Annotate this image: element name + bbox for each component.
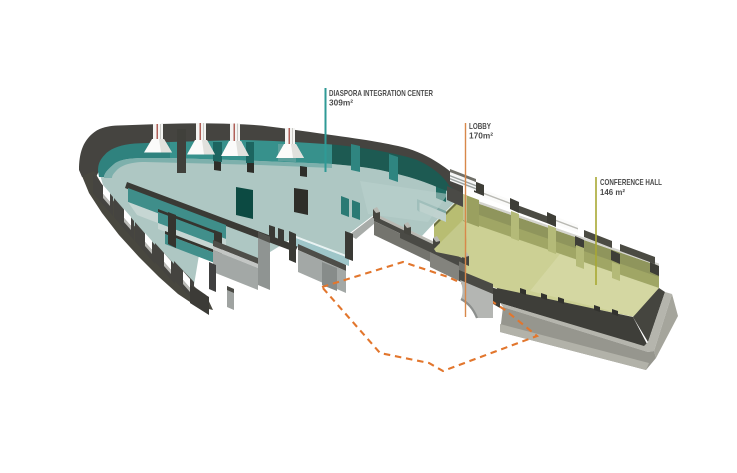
svg-text:309m²: 309m² [329,98,353,108]
svg-text:146 m²: 146 m² [600,187,625,197]
svg-text:170m²: 170m² [469,131,493,141]
svg-text:DIASPORA INTEGRATION CENTER: DIASPORA INTEGRATION CENTER [329,88,433,98]
svg-text:LOBBY: LOBBY [469,121,491,131]
svg-text:CONFERENCE HALL: CONFERENCE HALL [600,177,662,187]
